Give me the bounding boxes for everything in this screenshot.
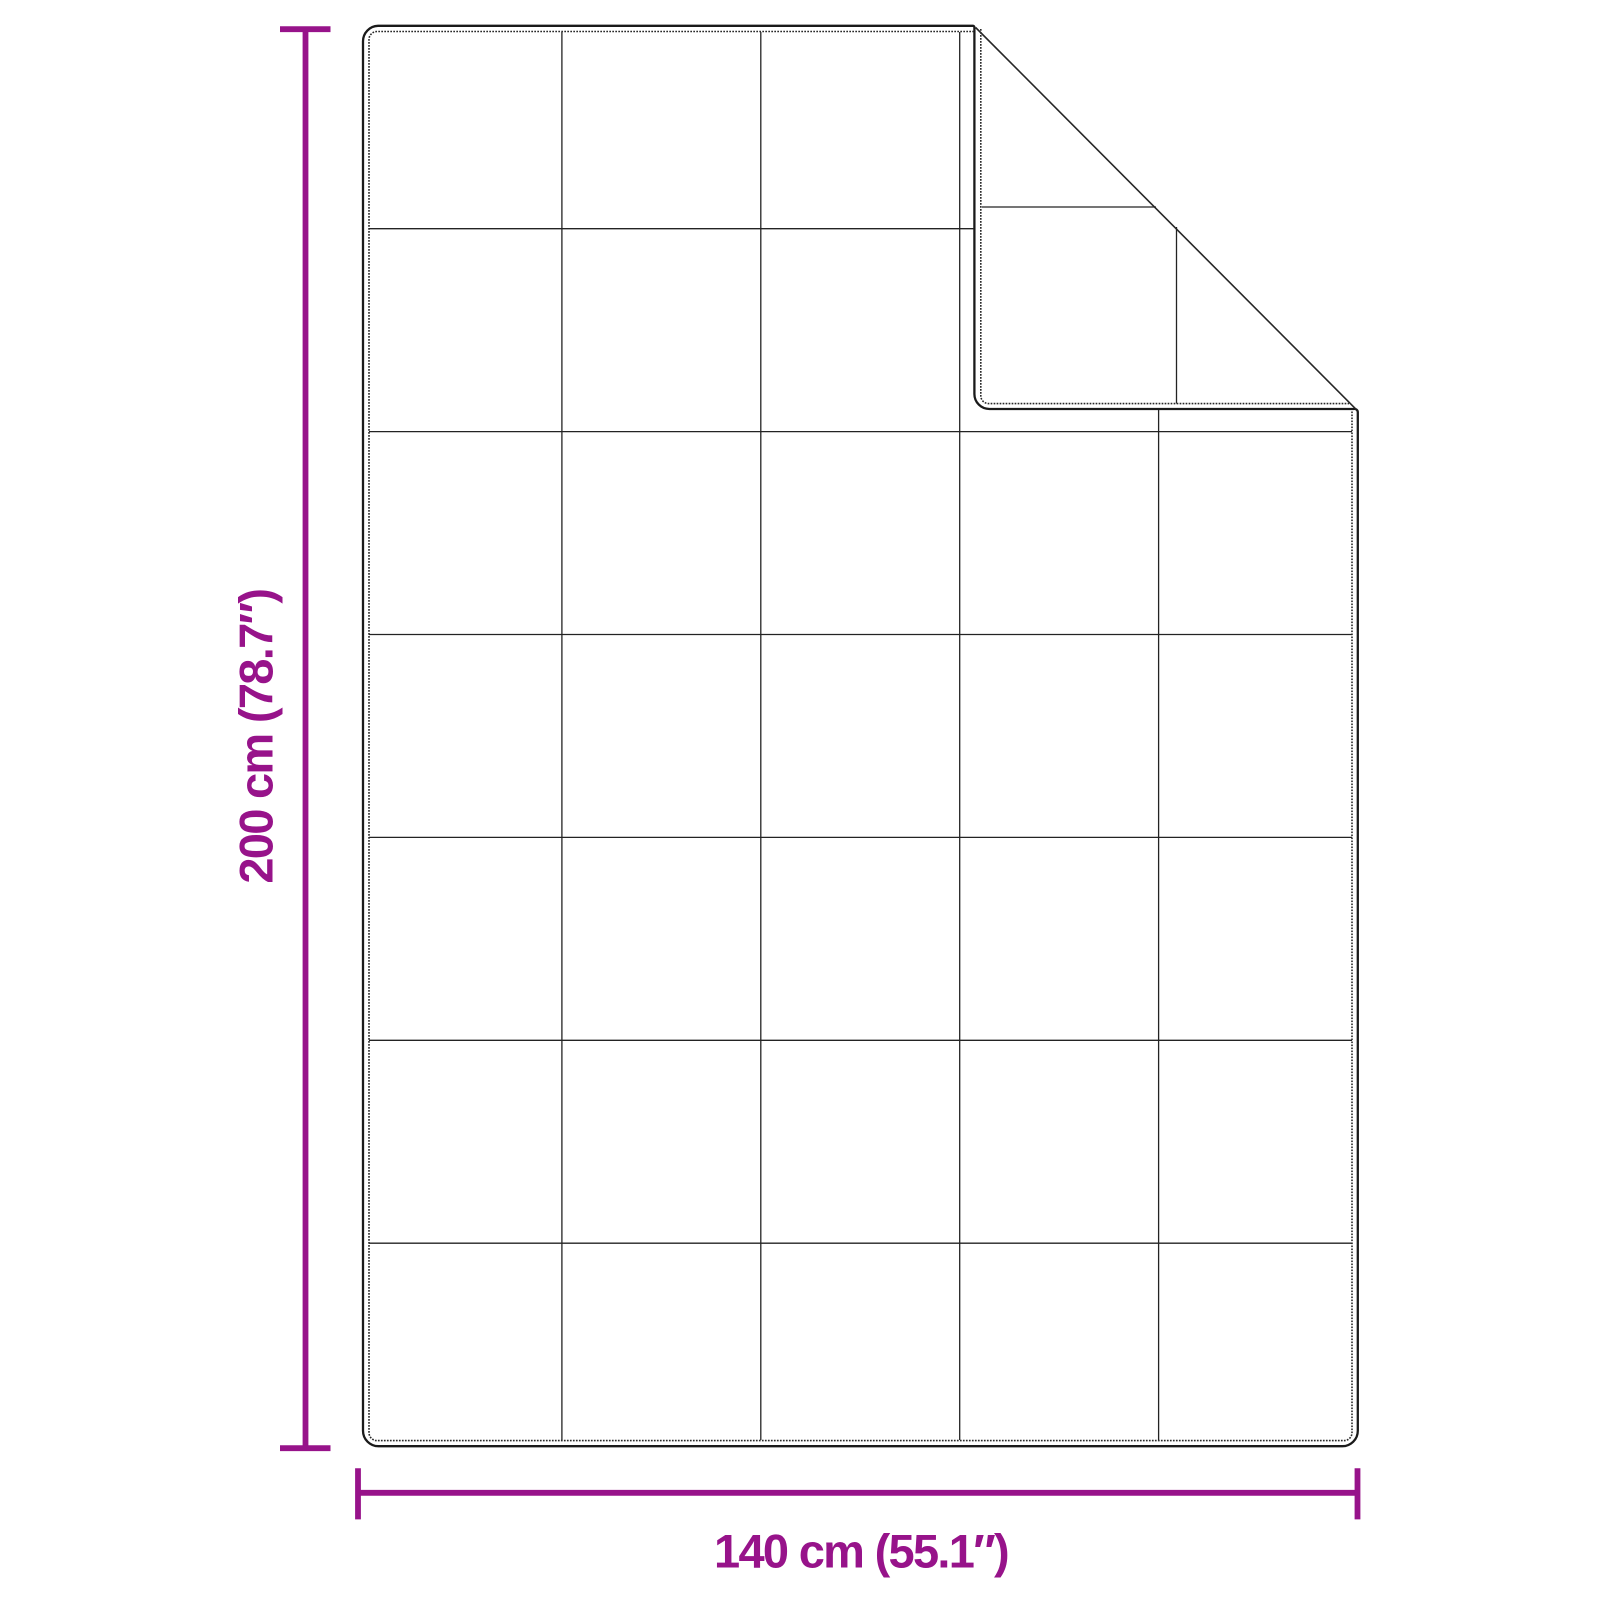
svg-text:200 cm (78.7″): 200 cm (78.7″) [230,590,283,884]
svg-text:140 cm (55.1″): 140 cm (55.1″) [714,1524,1008,1577]
